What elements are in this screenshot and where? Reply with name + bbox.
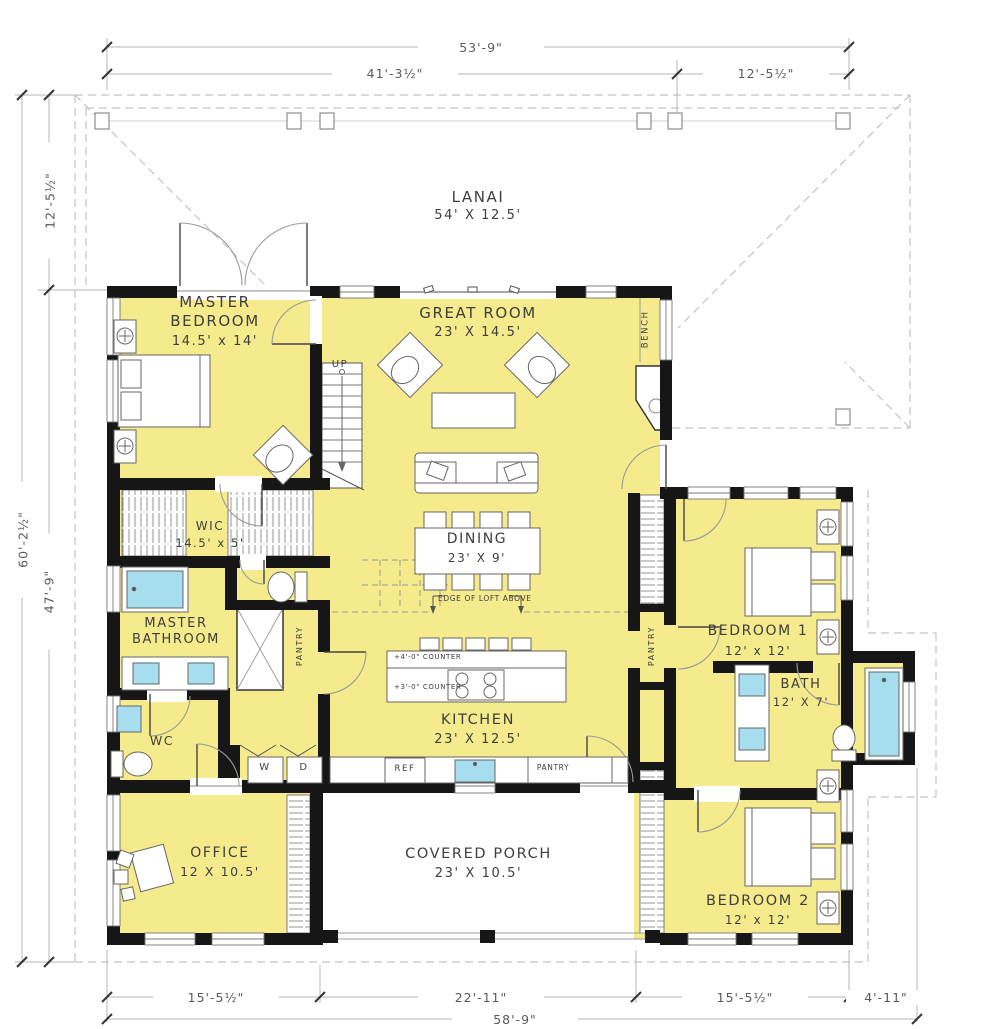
fridge-label: REF — [391, 764, 419, 775]
room-label-wic: WIC — [170, 519, 250, 534]
room-size-bath: 12' X 7' — [766, 695, 836, 709]
dim-top-right: 12'-5½" — [703, 66, 829, 81]
room-label-bath: BATH — [768, 677, 834, 693]
room-label-bedroom-2: BEDROOM 2 — [698, 892, 818, 910]
dim-bottom-4: 4'-11" — [846, 990, 926, 1005]
room-size-covered-porch: 23' X 10.5' — [396, 866, 561, 882]
stairs-up-label: UP — [326, 359, 354, 372]
room-label-master-bedroom: MASTER BEDROOM — [146, 293, 284, 331]
porch-edge — [323, 930, 660, 943]
room-label-kitchen: KITCHEN — [418, 711, 538, 729]
room-label-bedroom-1: BEDROOM 1 — [698, 623, 818, 641]
dim-top-left: 41'-3½" — [332, 66, 458, 81]
dim-bottom-1: 15'-5½" — [153, 990, 279, 1005]
stairs — [320, 363, 364, 490]
dim-bottom-total: 58'-9" — [452, 1012, 578, 1027]
dim-bottom-3: 15'-5½" — [682, 990, 808, 1005]
floor-plan-canvas: LANAI 54' X 12.5' MASTER BEDROOM 14.5' x… — [0, 0, 991, 1029]
room-size-bedroom-1: 12' x 12' — [698, 644, 818, 659]
room-size-master-bedroom: 14.5' x 14' — [146, 334, 284, 350]
washer-label: W — [258, 762, 272, 775]
room-size-lanai: 54' X 12.5' — [418, 208, 538, 224]
room-size-kitchen: 23' X 12.5' — [418, 732, 538, 748]
sofa — [415, 453, 538, 493]
counter-lower-label: +3'-0" COUNTER — [394, 683, 464, 692]
dim-bottom-2: 22'-11" — [418, 990, 544, 1005]
room-size-bedroom-2: 12' x 12' — [698, 913, 818, 928]
loft-edge-label: EDGE OF LOFT ABOVE — [438, 594, 518, 603]
pantry-label-hall: PANTRY — [647, 616, 657, 676]
room-label-covered-porch: COVERED PORCH — [396, 845, 561, 863]
coffee-table — [432, 393, 515, 428]
room-label-dining: DINING — [417, 531, 537, 549]
room-size-office: 12 X 10.5' — [170, 864, 270, 880]
room-label-great-room: GREAT ROOM — [398, 304, 558, 323]
shower — [237, 608, 283, 690]
room-size-great-room: 23' X 14.5' — [398, 325, 558, 341]
room-label-wc: WC — [144, 733, 180, 749]
pantry-label-master: PANTRY — [295, 616, 305, 676]
dim-top-total: 53'-9" — [418, 40, 544, 55]
room-label-office: OFFICE — [173, 845, 267, 863]
counter-upper-label: +4'-0" COUNTER — [394, 653, 464, 662]
pantry-label-kitchen: PANTRY — [528, 763, 578, 772]
dryer-label: D — [297, 762, 311, 775]
kitchen-counter — [330, 757, 628, 783]
dim-left-upper: 12'-5½" — [43, 143, 58, 259]
dim-left-total: 60'-2½" — [16, 482, 31, 598]
room-size-dining: 23' X 9' — [417, 551, 537, 566]
room-size-wic: 14.5' x 5' — [166, 536, 254, 550]
dim-left-lower: 47'-9" — [42, 534, 57, 650]
bench-label: BENCH — [641, 299, 652, 359]
room-label-master-bathroom: MASTER BATHROOM — [120, 616, 232, 649]
room-label-lanai: LANAI — [418, 188, 538, 207]
